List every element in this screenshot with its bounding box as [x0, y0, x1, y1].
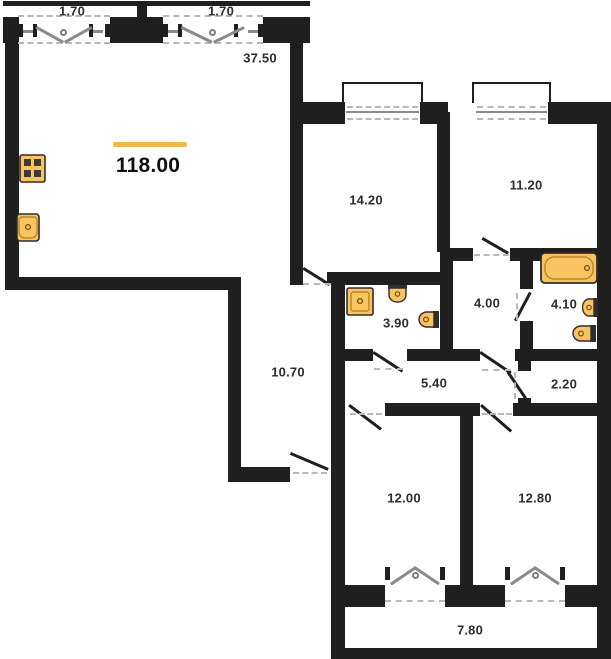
wall	[137, 1, 147, 18]
window-jamb	[385, 567, 390, 580]
wall	[345, 349, 373, 361]
wall	[228, 467, 290, 482]
hallway-area-label: 5.40	[421, 376, 447, 391]
door-leaf	[480, 404, 512, 433]
window-dashes	[477, 106, 546, 108]
window-jamb	[105, 24, 110, 37]
window-centerline	[346, 111, 419, 113]
bedroom-top-left-area-label: 14.20	[349, 193, 383, 208]
window-casement-line	[93, 30, 103, 33]
toilet-icon	[417, 310, 439, 329]
door-swing-dashes	[374, 368, 403, 370]
corridor-area-label: 10.70	[271, 365, 305, 380]
door-swing-dashes	[514, 372, 516, 399]
wall	[445, 585, 505, 607]
door-swing-dashes	[482, 369, 511, 371]
door-swing-dashes	[293, 472, 327, 474]
balcony-outline	[472, 82, 551, 103]
balcony-top-left-dimension: 1.70	[59, 4, 85, 19]
wall	[565, 585, 611, 607]
wall	[460, 403, 473, 588]
window-jamb	[505, 567, 510, 580]
door-leaf	[482, 237, 509, 255]
washbasin-icon	[387, 285, 408, 304]
wall	[345, 585, 385, 607]
entrance-door-leaf	[290, 452, 329, 471]
wall	[515, 349, 611, 361]
door-leaf	[507, 371, 527, 399]
wall	[228, 290, 241, 482]
window-centerline	[476, 111, 547, 113]
wall	[110, 17, 163, 43]
door-swing-dashes	[474, 254, 509, 256]
wall	[290, 42, 303, 285]
hall-area-label: 4.00	[474, 296, 500, 311]
door-swing-dashes	[350, 413, 382, 415]
bedroom-bottom-right-area-label: 12.80	[518, 491, 552, 506]
wall	[331, 285, 345, 659]
window-casement-line	[248, 30, 258, 33]
living-kitchen-area-label: 37.50	[243, 51, 277, 66]
bedroom-bottom-left-area-label: 12.00	[387, 491, 421, 506]
wall	[407, 349, 480, 361]
total-area-underline	[113, 142, 187, 147]
window-dashes	[347, 106, 418, 108]
window-casement-line	[36, 26, 65, 44]
wall	[520, 321, 533, 349]
window-dashes	[477, 118, 546, 120]
door-swing-dashes	[303, 283, 331, 285]
wall	[597, 103, 611, 659]
storage-area-label: 2.20	[551, 377, 577, 392]
wall	[440, 252, 453, 360]
washbasin-icon	[582, 297, 598, 318]
stove-icon	[19, 154, 46, 183]
window-jamb	[440, 567, 445, 580]
door-swing-dashes	[516, 293, 518, 320]
window-handle	[532, 572, 539, 579]
wall	[5, 17, 19, 290]
door-swing-dashes	[482, 413, 512, 415]
balcony-bottom-area-label: 7.80	[457, 623, 483, 638]
window-handle	[209, 29, 216, 36]
shower-tray-icon	[346, 287, 374, 316]
balcony-top-right-dimension: 1.70	[208, 4, 234, 19]
door-leaf	[348, 404, 382, 430]
bedroom-top-right-area-label: 11.20	[510, 178, 543, 193]
window-casement-line	[181, 26, 213, 44]
window-dashes	[347, 118, 418, 120]
wall	[520, 261, 533, 289]
window-casement-line	[23, 30, 33, 33]
wall	[437, 112, 450, 252]
bathtub-icon	[540, 252, 598, 284]
bathroom-large-area-label: 4.10	[551, 297, 577, 312]
wall	[5, 277, 241, 290]
wall	[327, 272, 453, 285]
window-handle	[60, 29, 67, 36]
window-jamb	[560, 567, 565, 580]
wall	[518, 361, 531, 371]
window-jamb	[258, 24, 263, 37]
bathroom-small-area-label: 3.90	[383, 316, 409, 331]
window-handle	[412, 572, 419, 579]
balcony-outline	[342, 82, 423, 103]
wall	[513, 403, 611, 416]
sink-icon	[16, 213, 40, 242]
total-area-label: 118.00	[116, 154, 180, 178]
wall	[263, 17, 310, 43]
toilet-icon	[570, 324, 596, 343]
wall	[303, 102, 345, 124]
floor-plan: 118.00 1.70 1.70 37.50 14.20 11.20 3.90 …	[0, 0, 611, 659]
window-sill-dashes	[385, 600, 445, 602]
window-casement-line	[168, 30, 178, 33]
window-sill-dashes	[505, 600, 565, 602]
wall	[331, 648, 611, 659]
